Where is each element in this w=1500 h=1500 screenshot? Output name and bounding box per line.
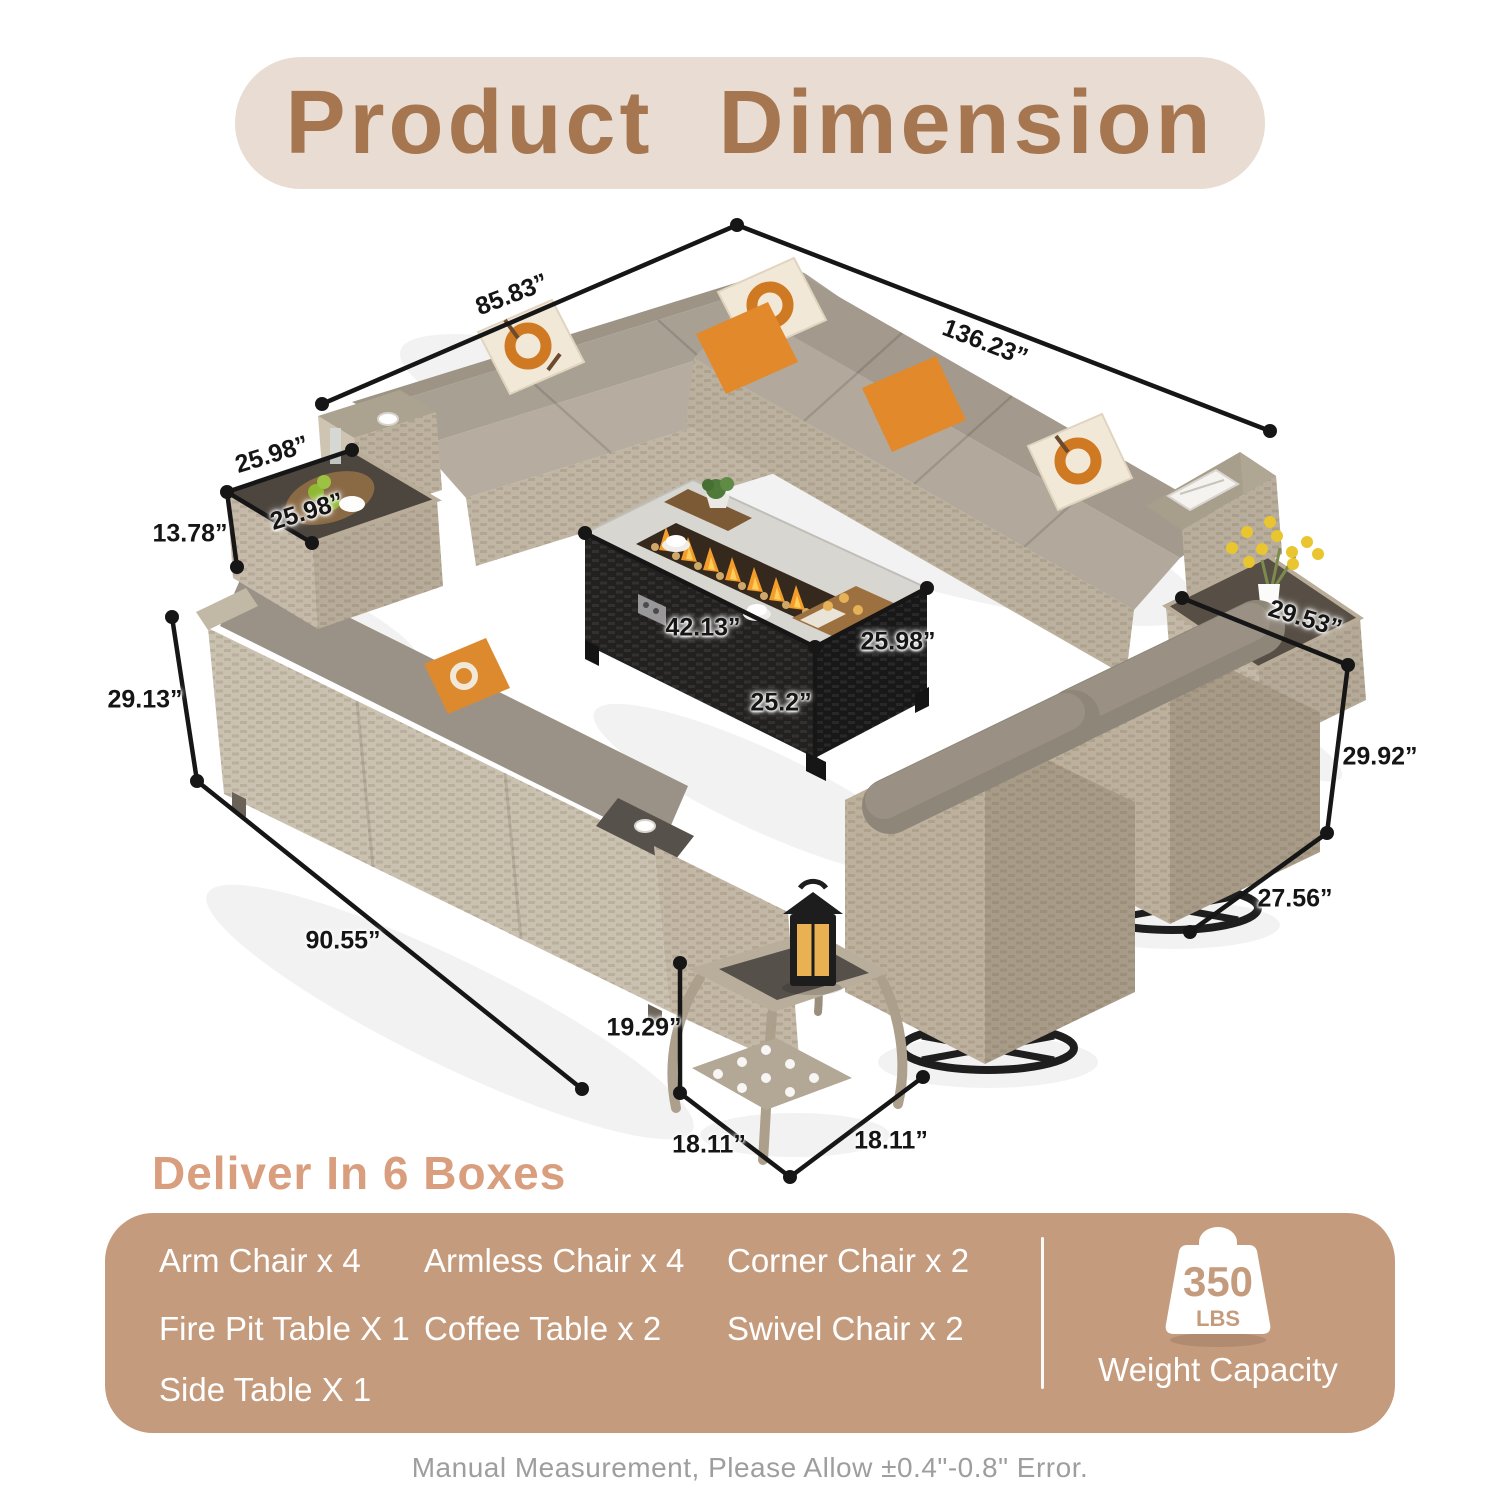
dim-label-swivel-height: 29.92” bbox=[1342, 743, 1417, 772]
box-item-corner-chair: Corner Chair x 2 bbox=[727, 1242, 969, 1280]
weight-unit: LBS bbox=[1196, 1306, 1240, 1331]
contents-box: Arm Chair x 4 Armless Chair x 4 Corner C… bbox=[105, 1213, 1395, 1433]
dim-label-swivel-width: 27.56” bbox=[1257, 885, 1332, 914]
dim-label-firepit-height: 25.2” bbox=[750, 689, 811, 718]
box-item-swivel-chair: Swivel Chair x 2 bbox=[727, 1310, 964, 1348]
weight-value: 350 bbox=[1183, 1258, 1253, 1305]
dim-label-sofa-length: 90.55” bbox=[305, 927, 380, 956]
lantern bbox=[782, 881, 843, 995]
box-item-coffee-table: Coffee Table x 2 bbox=[424, 1310, 661, 1348]
dim-label-lantern-table-width: 18.11” bbox=[672, 1131, 746, 1160]
measurement-disclaimer: Manual Measurement, Please Allow ±0.4"-0… bbox=[0, 1452, 1500, 1484]
vertical-divider bbox=[1041, 1237, 1044, 1389]
weight-capacity-label: Weight Capacity bbox=[1065, 1351, 1371, 1389]
box-item-armless-chair: Armless Chair x 4 bbox=[424, 1242, 684, 1280]
deliver-heading: Deliver In 6 Boxes bbox=[152, 1146, 566, 1200]
dim-label-lantern-table-height: 19.29” bbox=[606, 1014, 681, 1043]
dim-label-sofa-height: 29.13” bbox=[107, 686, 182, 715]
dim-label-firepit-width: 25.98” bbox=[860, 628, 935, 657]
weight-icon: 350 LBS bbox=[1143, 1219, 1293, 1349]
product-dimension-infographic: Product Dimension bbox=[0, 0, 1500, 1500]
weight-capacity-block: 350 LBS Weight Capacity bbox=[1065, 1219, 1371, 1389]
dim-label-lantern-table-depth: 18.11” bbox=[854, 1127, 928, 1156]
box-item-arm-chair: Arm Chair x 4 bbox=[159, 1242, 361, 1280]
box-item-side-table: Side Table X 1 bbox=[159, 1371, 371, 1409]
dim-label-coffee-height: 13.78” bbox=[152, 520, 227, 549]
box-item-fire-pit-table: Fire Pit Table X 1 bbox=[159, 1310, 410, 1348]
dim-label-firepit-length: 42.13” bbox=[665, 614, 740, 643]
